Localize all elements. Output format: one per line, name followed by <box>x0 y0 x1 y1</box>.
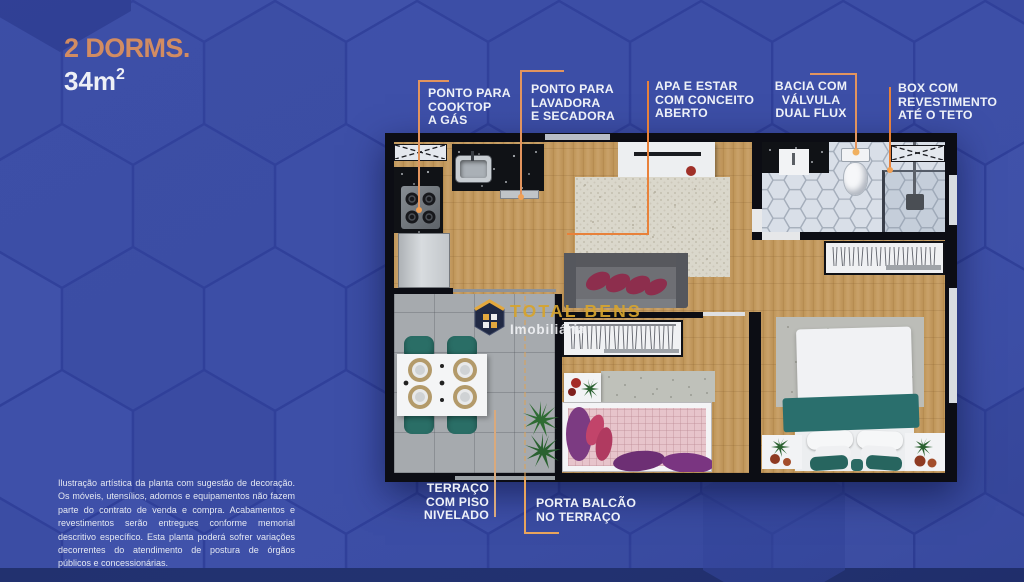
svg-text:Imobiliária: Imobiliária <box>510 322 586 337</box>
svg-text:TOTAL BENS: TOTAL BENS <box>510 301 642 321</box>
